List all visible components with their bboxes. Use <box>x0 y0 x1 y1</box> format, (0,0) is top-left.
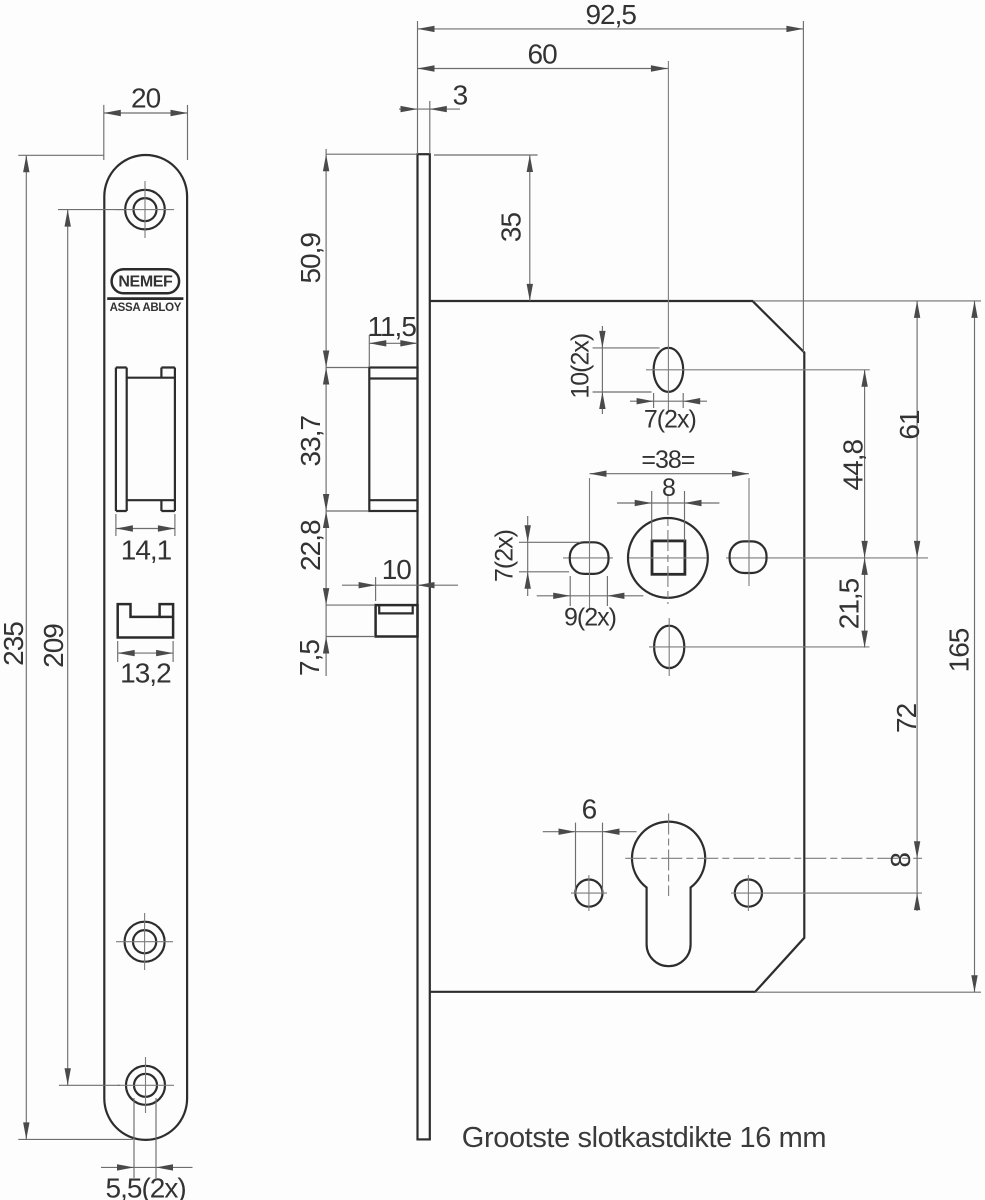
svg-text:3: 3 <box>453 80 468 111</box>
svg-text:21,5: 21,5 <box>834 578 865 629</box>
svg-text:6: 6 <box>582 794 597 825</box>
svg-text:13,2: 13,2 <box>120 658 171 689</box>
svg-text:165: 165 <box>944 628 975 672</box>
svg-text:7,5: 7,5 <box>294 640 325 676</box>
svg-text:92,5: 92,5 <box>585 0 636 30</box>
svg-text:10(2x): 10(2x) <box>567 334 595 399</box>
svg-text:5,5(2x): 5,5(2x) <box>106 1173 186 1200</box>
svg-text:7(2x): 7(2x) <box>491 530 519 582</box>
svg-text:10: 10 <box>382 554 412 585</box>
svg-text:44,8: 44,8 <box>837 440 868 491</box>
svg-text:14,1: 14,1 <box>121 535 172 566</box>
svg-text:209: 209 <box>38 624 69 668</box>
svg-text:35: 35 <box>495 213 526 243</box>
svg-text:7(2x): 7(2x) <box>644 406 696 434</box>
svg-text:Grootste slotkastdikte 16 mm: Grootste slotkastdikte 16 mm <box>462 1122 826 1154</box>
svg-text:61: 61 <box>894 410 925 440</box>
svg-text:22,8: 22,8 <box>295 520 326 571</box>
svg-text:33,7: 33,7 <box>295 416 326 467</box>
svg-text:60: 60 <box>528 39 558 70</box>
svg-text:=38=: =38= <box>641 446 694 474</box>
svg-text:8: 8 <box>662 474 675 502</box>
svg-text:20: 20 <box>131 83 161 114</box>
svg-text:ASSA ABLOY: ASSA ABLOY <box>110 302 182 314</box>
svg-text:50,9: 50,9 <box>295 233 326 284</box>
svg-text:NEMEF: NEMEF <box>118 274 173 291</box>
svg-text:8: 8 <box>885 853 916 868</box>
svg-text:235: 235 <box>0 622 29 666</box>
svg-text:9(2x): 9(2x) <box>564 604 616 632</box>
svg-text:72: 72 <box>891 703 922 733</box>
svg-text:11,5: 11,5 <box>367 311 416 342</box>
